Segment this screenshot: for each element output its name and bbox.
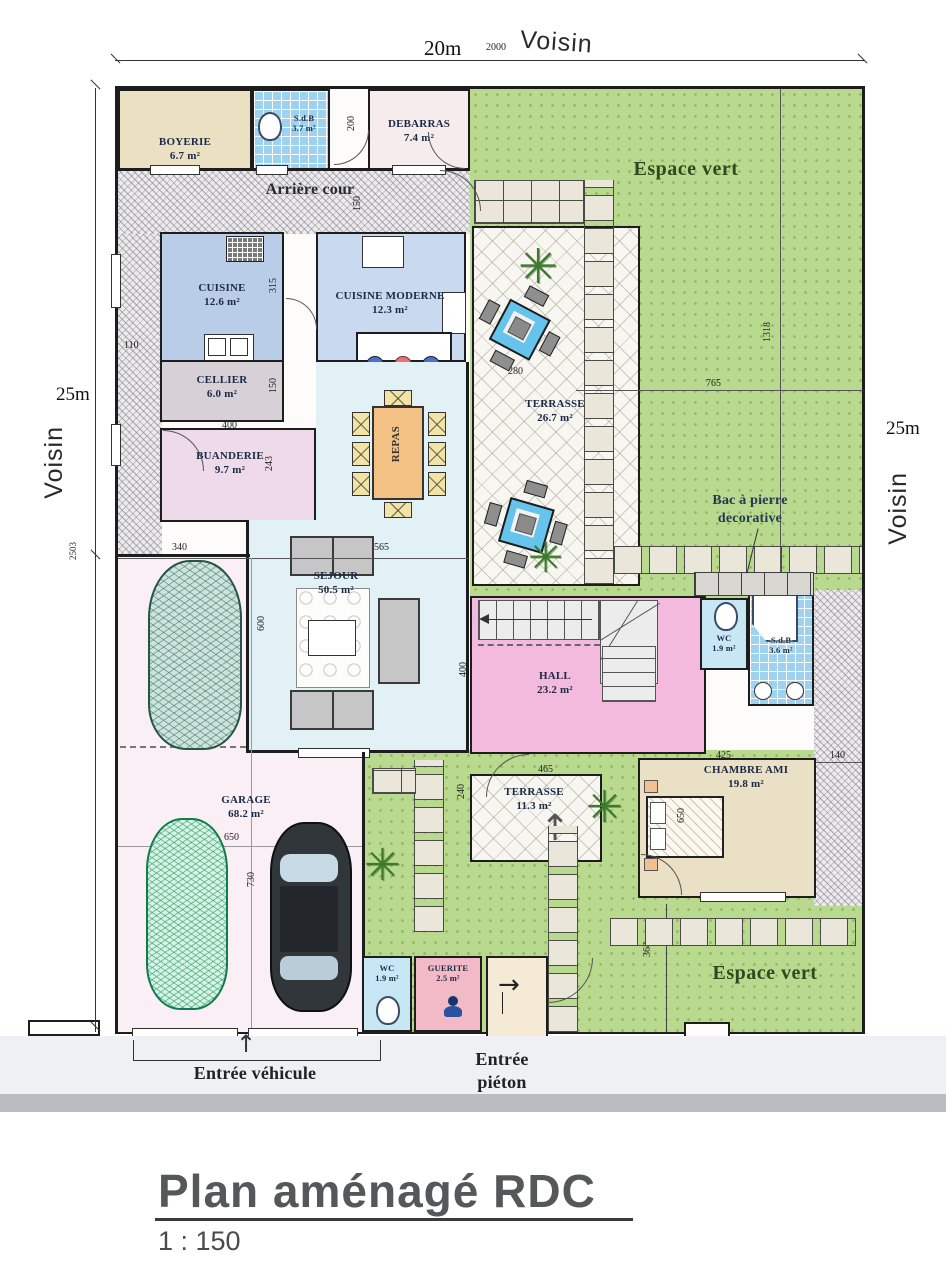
- wc-top-label: WC 1.9 m²: [702, 634, 746, 654]
- dim-400-hall: 400: [458, 662, 469, 677]
- dim-200: 200: [346, 116, 357, 131]
- bac-label-line2: decorative: [688, 510, 812, 528]
- coffee-table: [308, 620, 356, 656]
- cellier-name: CELLIER: [175, 374, 269, 388]
- dim-565: 565: [374, 542, 389, 553]
- plant-icon: ✳: [528, 538, 563, 580]
- stairs: [478, 600, 600, 640]
- window: [298, 748, 370, 758]
- vehicle-bracket-end: [380, 1040, 381, 1060]
- sofa: [378, 598, 420, 684]
- wall-garage-top: [118, 554, 250, 557]
- cuisine-moderne-name: CUISINE MODERNE: [328, 290, 452, 304]
- window: [111, 254, 121, 308]
- dim-140: 140: [830, 750, 845, 761]
- floor-plan: BOYERIE 6.7 m² S.d.B 3.7 m² DEBARRAS 7.4…: [0, 0, 946, 1280]
- stepping-stones-path: [610, 918, 856, 946]
- stepping-stones-path: [414, 760, 444, 932]
- stove-icon: [226, 236, 264, 262]
- dim-600: 600: [256, 616, 267, 631]
- dining-chair: [428, 442, 446, 466]
- sink-bowl: [208, 338, 226, 356]
- hall-name: HALL: [510, 670, 600, 684]
- dim-243: 243: [264, 456, 275, 471]
- guard-icon-body: [444, 1006, 462, 1017]
- sofa: [290, 690, 374, 730]
- stairs-arrow: [479, 614, 489, 624]
- stone-planter: [694, 572, 814, 596]
- toilet-icon: [258, 112, 282, 141]
- dining-chair: [352, 442, 370, 466]
- window: [700, 892, 786, 902]
- dim-25m-left: 25m: [56, 384, 90, 406]
- car-green: [146, 818, 228, 1010]
- dining-chair: [384, 502, 412, 518]
- window: [392, 165, 446, 175]
- cuisine-moderne-area: 12.3 m²: [328, 304, 452, 318]
- cuisine-label: CUISINE 12.6 m²: [180, 282, 264, 310]
- entree-pieton-line2: piéton: [458, 1071, 546, 1094]
- cuisine-moderne-label: CUISINE MODERNE 12.3 m²: [328, 290, 452, 318]
- stairs-direction-line: [488, 619, 592, 620]
- dim-line: [118, 558, 468, 559]
- guerite-label: GUERITE 2.5 m²: [418, 964, 478, 984]
- dining-chair: [428, 472, 446, 496]
- dim-315: 315: [268, 278, 279, 293]
- dim-650-bed: 650: [676, 808, 687, 823]
- dim-1318: 1318: [762, 322, 773, 342]
- guerite-area: 2.5 m²: [418, 974, 478, 984]
- dim-150-cellier: 150: [268, 378, 279, 393]
- hall-label: HALL 23.2 m²: [510, 670, 600, 698]
- vehicle-bracket: [133, 1060, 381, 1061]
- stairs-lower-run: [602, 646, 656, 702]
- window: [150, 165, 200, 175]
- dim-650-garage: 650: [224, 832, 239, 843]
- car-roof: [280, 886, 338, 952]
- dim-25m-right: 25m: [886, 418, 920, 440]
- sdb-top-area: 3.7 m²: [282, 124, 326, 134]
- voisin-top-label: Voisin: [519, 25, 594, 59]
- title-underline: [155, 1218, 633, 1221]
- bac-label-line1: Bac à pierre: [688, 492, 812, 510]
- garage-name: GARAGE: [198, 794, 294, 808]
- plant-icon: ✳: [586, 786, 623, 830]
- stairs-dashed: [478, 644, 600, 646]
- wc-top-area: 1.9 m²: [702, 644, 746, 654]
- nightstand: [644, 780, 658, 793]
- guard-icon-head: [448, 996, 458, 1006]
- debarras-name: DEBARRAS: [376, 118, 462, 132]
- cuisine-name: CUISINE: [180, 282, 264, 296]
- fridge-icon: [362, 236, 404, 268]
- car-top: [148, 560, 242, 750]
- hall-area: 23.2 m²: [510, 684, 600, 698]
- dim-150-top: 150: [352, 196, 363, 211]
- wc-bottom-area: 1.9 m²: [364, 974, 410, 984]
- cuisine-area: 12.6 m²: [180, 296, 264, 310]
- plan-scale: 1 : 150: [158, 1226, 241, 1257]
- entree-pieton-line1: Entrée: [458, 1048, 546, 1071]
- boyerie-label: BOYERIE 6.7 m²: [140, 136, 230, 164]
- cellier-label: CELLIER 6.0 m²: [175, 374, 269, 402]
- stepping-stones-path: [614, 546, 862, 574]
- dining-chair: [384, 390, 412, 406]
- pedestrian-arrow-stem: [502, 992, 503, 1014]
- chambre-ami-area: 19.8 m²: [688, 778, 804, 792]
- boyerie-name: BOYERIE: [140, 136, 230, 150]
- dim-765: 765: [706, 378, 721, 389]
- dining-chair: [352, 412, 370, 436]
- sdb-top-label: S.d.B 3.7 m²: [282, 114, 326, 134]
- dim-340: 340: [172, 542, 187, 553]
- sejour-name: SEJOUR: [300, 570, 372, 584]
- car-rear-window: [280, 956, 338, 980]
- toilet-icon: [714, 602, 738, 631]
- garage-area: 68.2 m²: [198, 808, 294, 822]
- stepping-stones: [372, 768, 416, 794]
- vehicle-arrow: ↑: [236, 1030, 256, 1058]
- pillow: [650, 828, 666, 850]
- dim-line-top: [115, 60, 865, 61]
- wc-bottom-label: WC 1.9 m²: [364, 964, 410, 984]
- toilet-icon: [376, 996, 400, 1025]
- street-band: [0, 1094, 946, 1112]
- dim-110: 110: [124, 340, 139, 351]
- dim-465: 465: [538, 764, 553, 775]
- neighbor-wall-stub: [28, 1020, 100, 1036]
- sink-bowl: [230, 338, 248, 356]
- dim-2503: 2503: [68, 542, 78, 560]
- dining-chair: [428, 412, 446, 436]
- stepping-stones: [474, 180, 584, 224]
- plant-icon: ✳: [364, 844, 401, 888]
- boyerie-area: 6.7 m²: [140, 150, 230, 164]
- plan-title: Plan aménagé RDC: [158, 1164, 596, 1218]
- sejour-label: SEJOUR 50.5 m²: [300, 570, 372, 598]
- sdb-right-area: 3.6 m²: [750, 646, 812, 656]
- espace-vert-bottom-label: Espace vert: [700, 962, 830, 985]
- car-windshield: [280, 854, 338, 882]
- dim-line: [576, 390, 863, 391]
- dining-chair: [352, 472, 370, 496]
- stepping-stones-path: [584, 180, 614, 584]
- entree-pieton-label: Entrée piéton: [458, 1048, 546, 1093]
- entree-vehicule-label: Entrée véhicule: [170, 1062, 340, 1085]
- bac-label: Bac à pierre decorative: [688, 492, 812, 527]
- cellier-area: 6.0 m²: [175, 388, 269, 402]
- dim-tick: [858, 54, 868, 64]
- garage-label: GARAGE 68.2 m²: [198, 794, 294, 822]
- chambre-ami-label: CHAMBRE AMI 19.8 m²: [688, 764, 804, 792]
- dim-tick: [111, 54, 121, 64]
- window: [111, 424, 121, 466]
- basin-icon: [754, 682, 772, 700]
- espace-vert-top-label: Espace vert: [616, 158, 756, 181]
- window: [256, 165, 288, 175]
- dim-730: 730: [246, 872, 257, 887]
- repas-label: REPAS: [390, 426, 404, 462]
- pillow: [650, 802, 666, 824]
- dim-line-left: [95, 88, 96, 1032]
- vehicle-bracket-end: [133, 1040, 134, 1060]
- sejour-area: 50.5 m²: [300, 584, 372, 598]
- sdb-right-label: S.d.B 3.6 m²: [750, 636, 812, 656]
- voisin-left-label: Voisin: [40, 426, 69, 499]
- plant-icon: ✳: [518, 244, 558, 292]
- basin-icon: [786, 682, 804, 700]
- dim-2000: 2000: [486, 42, 506, 53]
- dim-20m: 20m: [424, 36, 461, 61]
- dim-240: 240: [456, 784, 467, 799]
- side-strip-right: [814, 590, 862, 906]
- voisin-right-label: Voisin: [884, 472, 913, 545]
- chambre-ami-name: CHAMBRE AMI: [688, 764, 804, 778]
- car-black: [270, 822, 352, 1012]
- backyard-strip-left: [118, 234, 162, 556]
